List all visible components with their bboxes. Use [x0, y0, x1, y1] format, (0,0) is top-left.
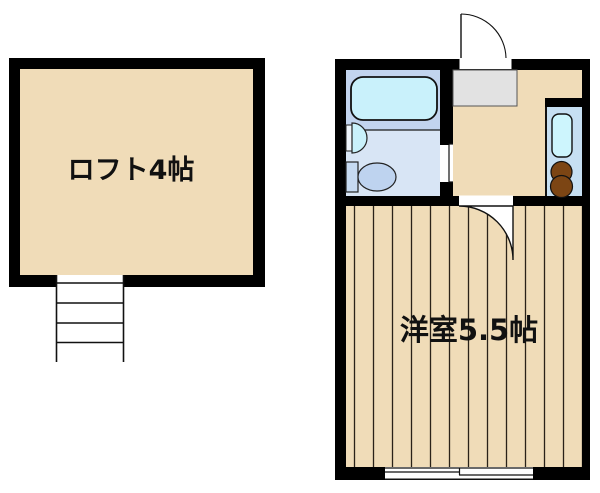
main-unit: 洋室5.5帖 [335, 14, 590, 480]
window [385, 467, 533, 480]
kitchen-sink-icon [552, 114, 572, 157]
toilet-icon [358, 163, 396, 191]
stove-burner-icon [551, 176, 573, 198]
bathroom [346, 70, 440, 196]
loft-unit: ロフト4帖 [9, 58, 265, 287]
floor-plan: ロフト4帖 [0, 0, 600, 493]
kitchenette [545, 98, 582, 198]
washbasin-counter [346, 125, 352, 151]
room-door-opening [459, 196, 513, 207]
western-room: 洋室5.5帖 [346, 196, 582, 468]
western-room-label: 洋室5.5帖 [400, 313, 538, 347]
loft-wall-opening [56, 275, 124, 287]
kitchen-wall [545, 98, 582, 107]
loft-label: ロフト4帖 [68, 155, 195, 186]
bathtub-icon [351, 77, 437, 120]
floor-plan-drawing: ロフト4帖 [0, 0, 600, 493]
genkan-step-icon [453, 70, 517, 106]
entrance-door-opening [460, 58, 512, 70]
toilet-tank [346, 162, 358, 192]
